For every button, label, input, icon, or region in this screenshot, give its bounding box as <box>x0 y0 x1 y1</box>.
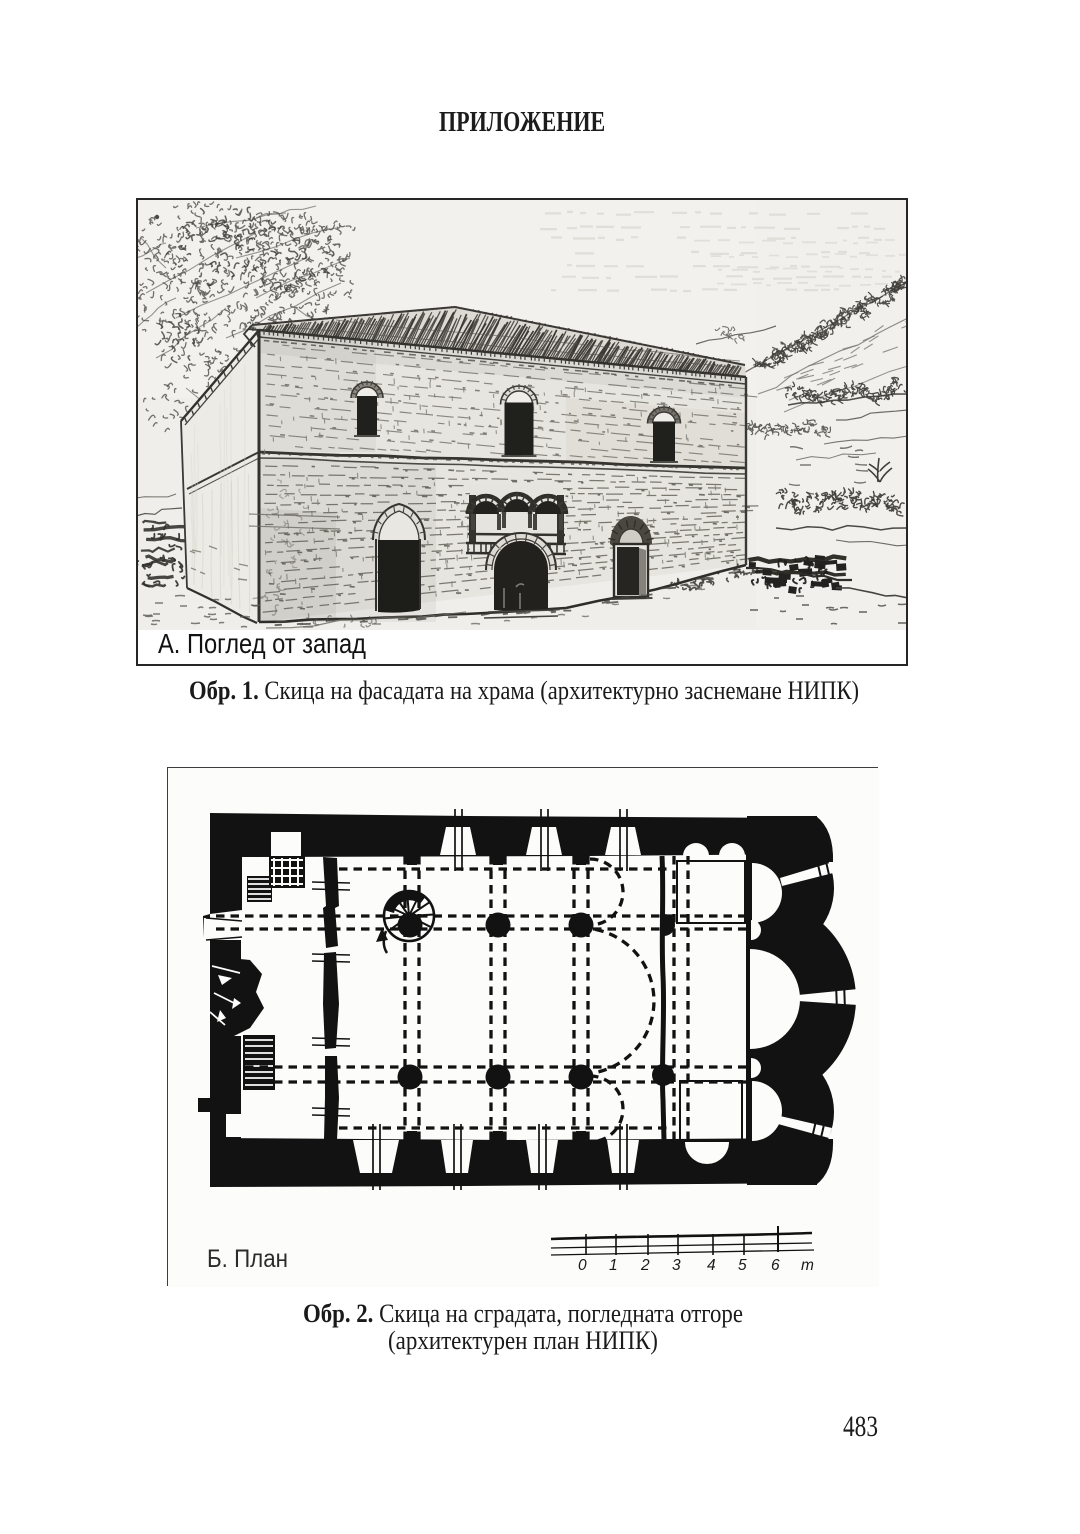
svg-text:2: 2 <box>640 1257 650 1274</box>
svg-text:0: 0 <box>578 1257 587 1274</box>
svg-text:1: 1 <box>609 1257 618 1274</box>
svg-text:4: 4 <box>707 1257 716 1274</box>
svg-text:m: m <box>801 1257 814 1274</box>
svg-text:5: 5 <box>738 1257 747 1274</box>
svg-text:3: 3 <box>672 1257 681 1274</box>
svg-text:6: 6 <box>771 1257 780 1274</box>
